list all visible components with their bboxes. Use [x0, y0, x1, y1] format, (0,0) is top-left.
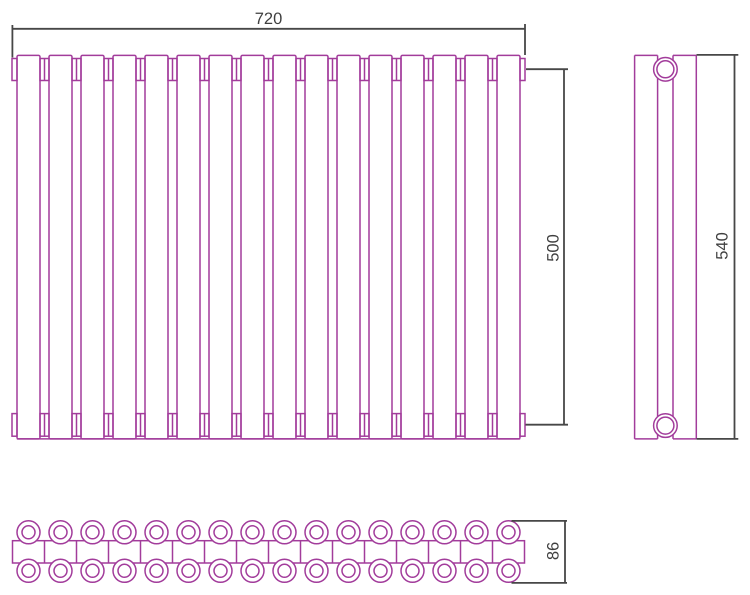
svg-text:540: 540 — [713, 232, 731, 260]
svg-text:720: 720 — [255, 10, 283, 28]
svg-text:500: 500 — [544, 234, 562, 262]
svg-text:86: 86 — [545, 542, 563, 560]
